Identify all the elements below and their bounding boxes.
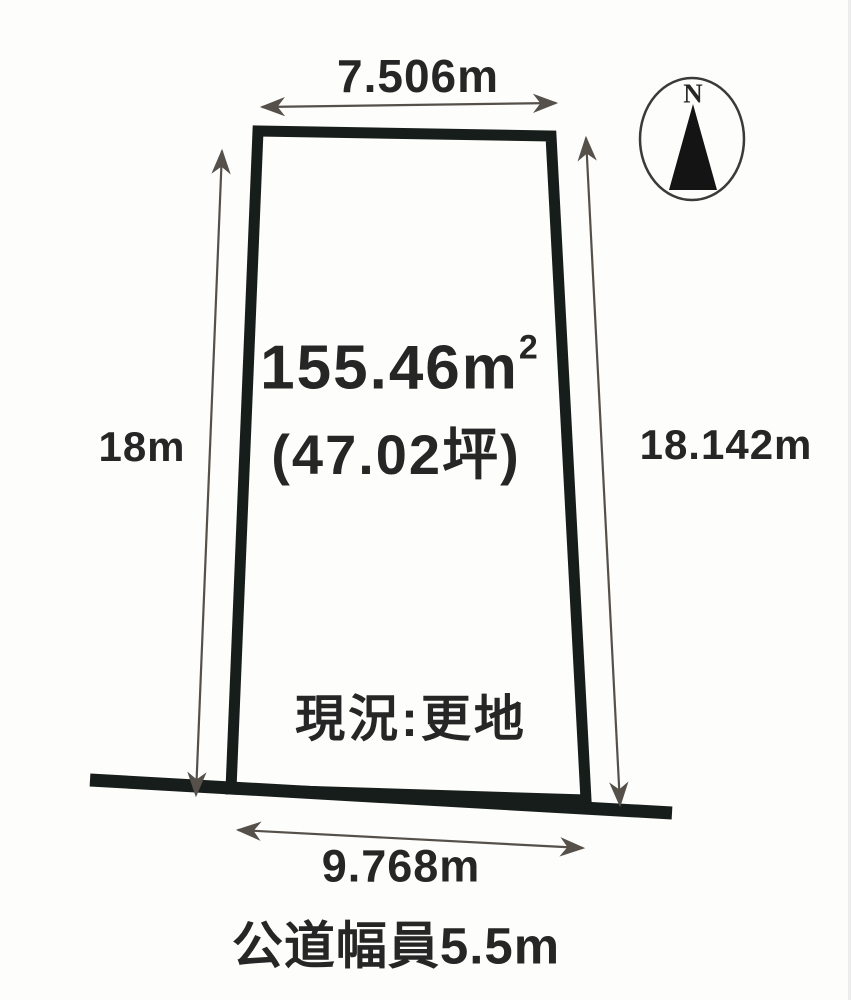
parcel-area-sqm-superscript: 2 [519, 329, 538, 367]
land-plot-diagram: 7.506m 18m 18.142m 155.46m2 (47.02坪) 現況:… [0, 0, 851, 1000]
dimension-arrow-left [196, 151, 222, 795]
road-width-label: 公道幅員5.5m [232, 921, 560, 972]
dimension-label-right-side: 18.142m [640, 424, 813, 466]
compass-north-label: N [683, 81, 703, 108]
dimension-label-frontage: 9.768m [322, 844, 481, 889]
north-needle-icon [669, 104, 717, 190]
parcel-area-sqm-value: 155.46m [260, 334, 519, 403]
dimension-label-left-side: 18m [98, 426, 185, 468]
parcel-area-sqm: 155.46m2 [260, 331, 538, 400]
parcel-area-tsubo: (47.02坪) [271, 427, 520, 483]
parcel-status-label: 現況:更地 [295, 694, 527, 744]
dimension-arrow-top [262, 103, 556, 107]
dimension-arrow-right [586, 138, 620, 805]
dimension-label-top-width: 7.506m [337, 53, 499, 99]
